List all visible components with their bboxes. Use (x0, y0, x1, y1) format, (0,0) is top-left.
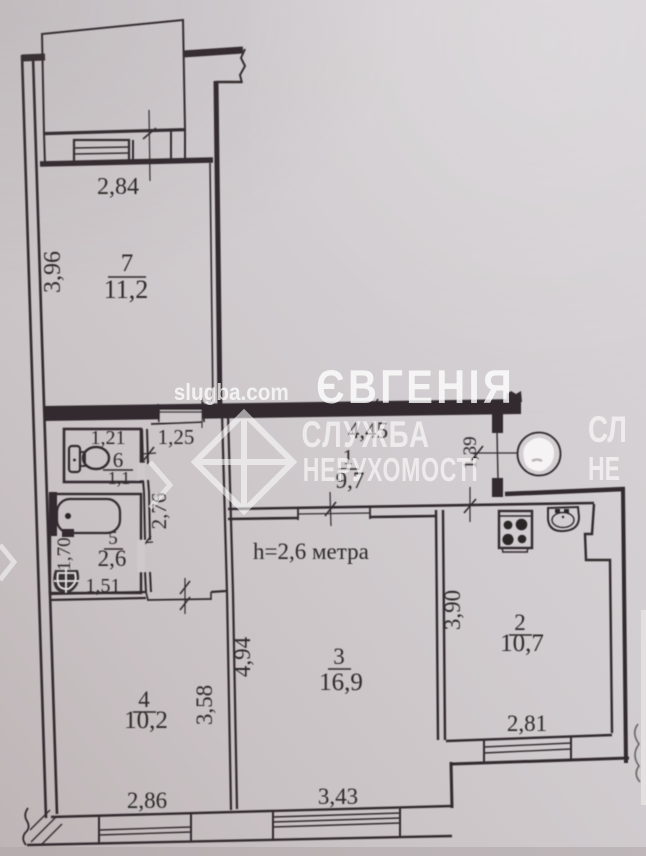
svg-text:3,43: 3,43 (318, 784, 358, 809)
svg-text:1,70: 1,70 (54, 537, 75, 570)
svg-text:16,9: 16,9 (319, 669, 363, 696)
svg-text:1,21: 1,21 (91, 427, 126, 449)
svg-text:3: 3 (333, 644, 345, 669)
svg-text:3,58: 3,58 (192, 685, 217, 725)
svg-text:h=2,6 метра: h=2,6 метра (253, 539, 369, 564)
svg-text:4,94: 4,94 (230, 636, 255, 677)
svg-text:2,86: 2,86 (127, 788, 167, 813)
svg-text:slugba.com: slugba.com (174, 379, 289, 405)
svg-text:1,1: 1,1 (108, 468, 131, 488)
svg-text:СЛУЖБА: СЛУЖБА (301, 413, 430, 455)
svg-text:10,2: 10,2 (124, 707, 168, 734)
svg-text:НЕ: НЕ (588, 451, 620, 488)
svg-text:10,7: 10,7 (500, 630, 544, 657)
svg-text:3,90: 3,90 (440, 590, 465, 630)
svg-text:2,81: 2,81 (507, 711, 547, 736)
svg-text:ЄВГЕНІЯ: ЄВГЕНІЯ (316, 362, 515, 414)
svg-text:СЛ: СЛ (588, 408, 627, 450)
svg-text:НЕРУХОМОСТІ: НЕРУХОМОСТІ (303, 452, 479, 489)
svg-text:2,6: 2,6 (98, 546, 127, 571)
svg-text:1,25: 1,25 (158, 425, 195, 449)
